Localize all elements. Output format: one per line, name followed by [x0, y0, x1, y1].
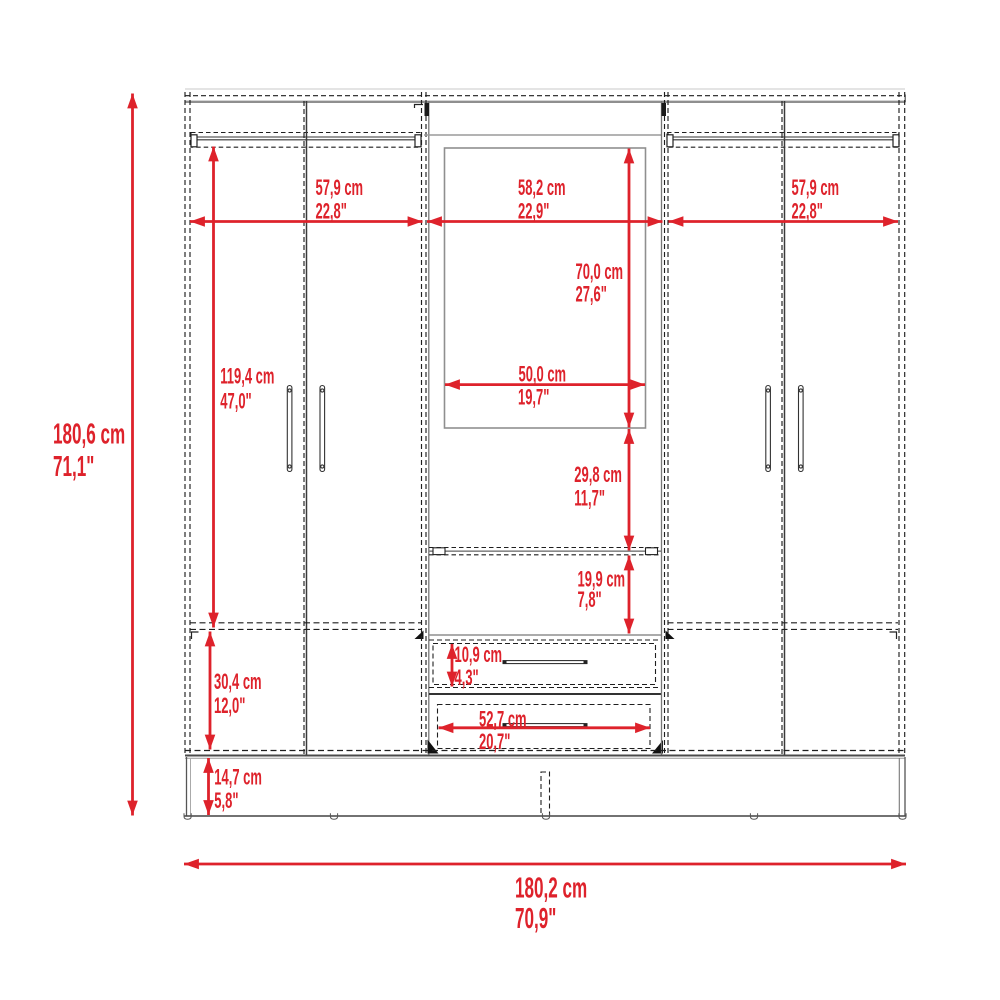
svg-text:11,7": 11,7"	[574, 486, 605, 510]
svg-text:20,7": 20,7"	[479, 730, 510, 754]
svg-text:57,9 cm: 57,9 cm	[316, 176, 364, 200]
svg-text:30,4 cm: 30,4 cm	[214, 670, 262, 694]
svg-text:119,4 cm: 119,4 cm	[220, 364, 274, 388]
svg-text:22,9": 22,9"	[518, 199, 549, 223]
svg-text:180,2 cm: 180,2 cm	[515, 872, 587, 905]
svg-text:14,7 cm: 14,7 cm	[214, 765, 262, 789]
svg-text:5,8": 5,8"	[214, 788, 238, 812]
svg-text:4,3": 4,3"	[455, 666, 479, 690]
svg-text:58,2 cm: 58,2 cm	[518, 176, 566, 200]
svg-text:19,7": 19,7"	[518, 385, 549, 409]
svg-text:12,0": 12,0"	[214, 694, 245, 718]
svg-text:10,9 cm: 10,9 cm	[455, 643, 503, 667]
svg-text:22,8": 22,8"	[316, 199, 347, 223]
svg-text:27,6": 27,6"	[576, 282, 607, 306]
svg-text:47,0": 47,0"	[220, 389, 251, 413]
svg-text:70,9": 70,9"	[515, 902, 556, 935]
svg-text:22,8": 22,8"	[792, 199, 823, 223]
svg-text:7,8": 7,8"	[578, 588, 602, 612]
svg-text:57,9 cm: 57,9 cm	[792, 176, 840, 200]
svg-text:52,7 cm: 52,7 cm	[479, 707, 527, 731]
svg-text:29,8 cm: 29,8 cm	[574, 463, 622, 487]
svg-text:50,0 cm: 50,0 cm	[519, 362, 567, 386]
svg-text:180,6 cm: 180,6 cm	[53, 418, 125, 451]
svg-text:70,0 cm: 70,0 cm	[576, 259, 624, 283]
svg-text:71,1": 71,1"	[53, 450, 94, 483]
